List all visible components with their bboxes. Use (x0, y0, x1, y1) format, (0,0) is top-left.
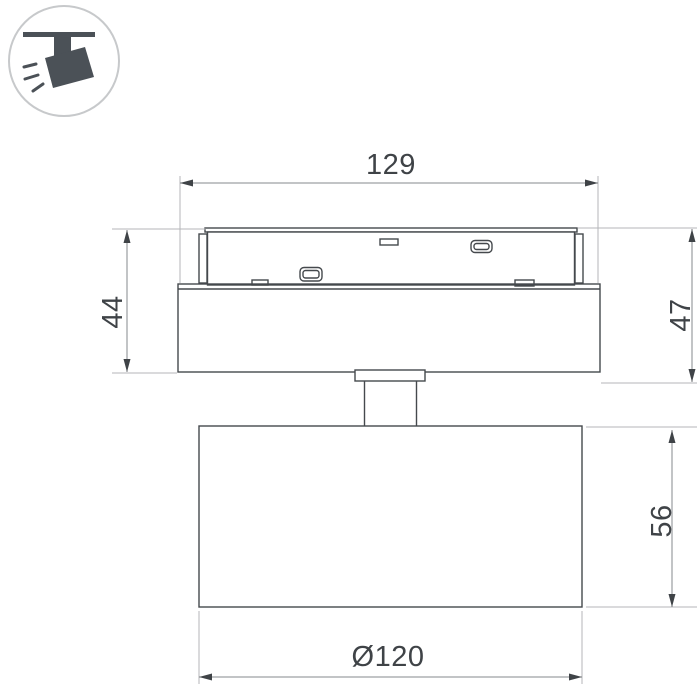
connector-body (208, 232, 575, 285)
dimension-overall-height: 47 (578, 228, 697, 383)
swivel-joint (355, 370, 425, 426)
connector-left-tab (199, 234, 207, 283)
dimension-drawing: 129 44 47 56 Ø120 (0, 0, 700, 687)
arrowhead-top (669, 430, 676, 443)
driver-housing (178, 284, 600, 372)
arrowhead-top (124, 230, 131, 243)
dimension-label-lamp-height: 56 (646, 504, 678, 537)
arrowhead-bottom (689, 369, 696, 382)
dimension-housing-height: 44 (97, 229, 206, 373)
dimension-lamp-diameter: Ø120 (199, 611, 582, 684)
arrowhead-left (199, 674, 212, 681)
technical-drawing-page: 129 44 47 56 Ø120 (0, 0, 700, 687)
dimension-label-overall-height: 47 (665, 298, 697, 331)
track-connector-box (199, 228, 583, 286)
joint-flange (355, 370, 425, 381)
housing-outline (178, 284, 600, 372)
arrowhead-bottom (669, 594, 676, 607)
arrowhead-left (180, 180, 193, 187)
arrowhead-right (585, 180, 598, 187)
arrowhead-bottom (124, 359, 131, 372)
track-spotlight-icon (9, 6, 119, 116)
lamp-cylinder (199, 426, 582, 607)
dimension-label-lamp-diameter: Ø120 (352, 641, 425, 673)
dimension-label-width: 129 (366, 149, 416, 181)
arrowhead-top (689, 229, 696, 242)
dimension-lamp-height: 56 (586, 427, 697, 607)
dimension-label-housing-height: 44 (97, 295, 129, 328)
arrowhead-right (569, 674, 582, 681)
connector-right-tab (575, 234, 583, 283)
